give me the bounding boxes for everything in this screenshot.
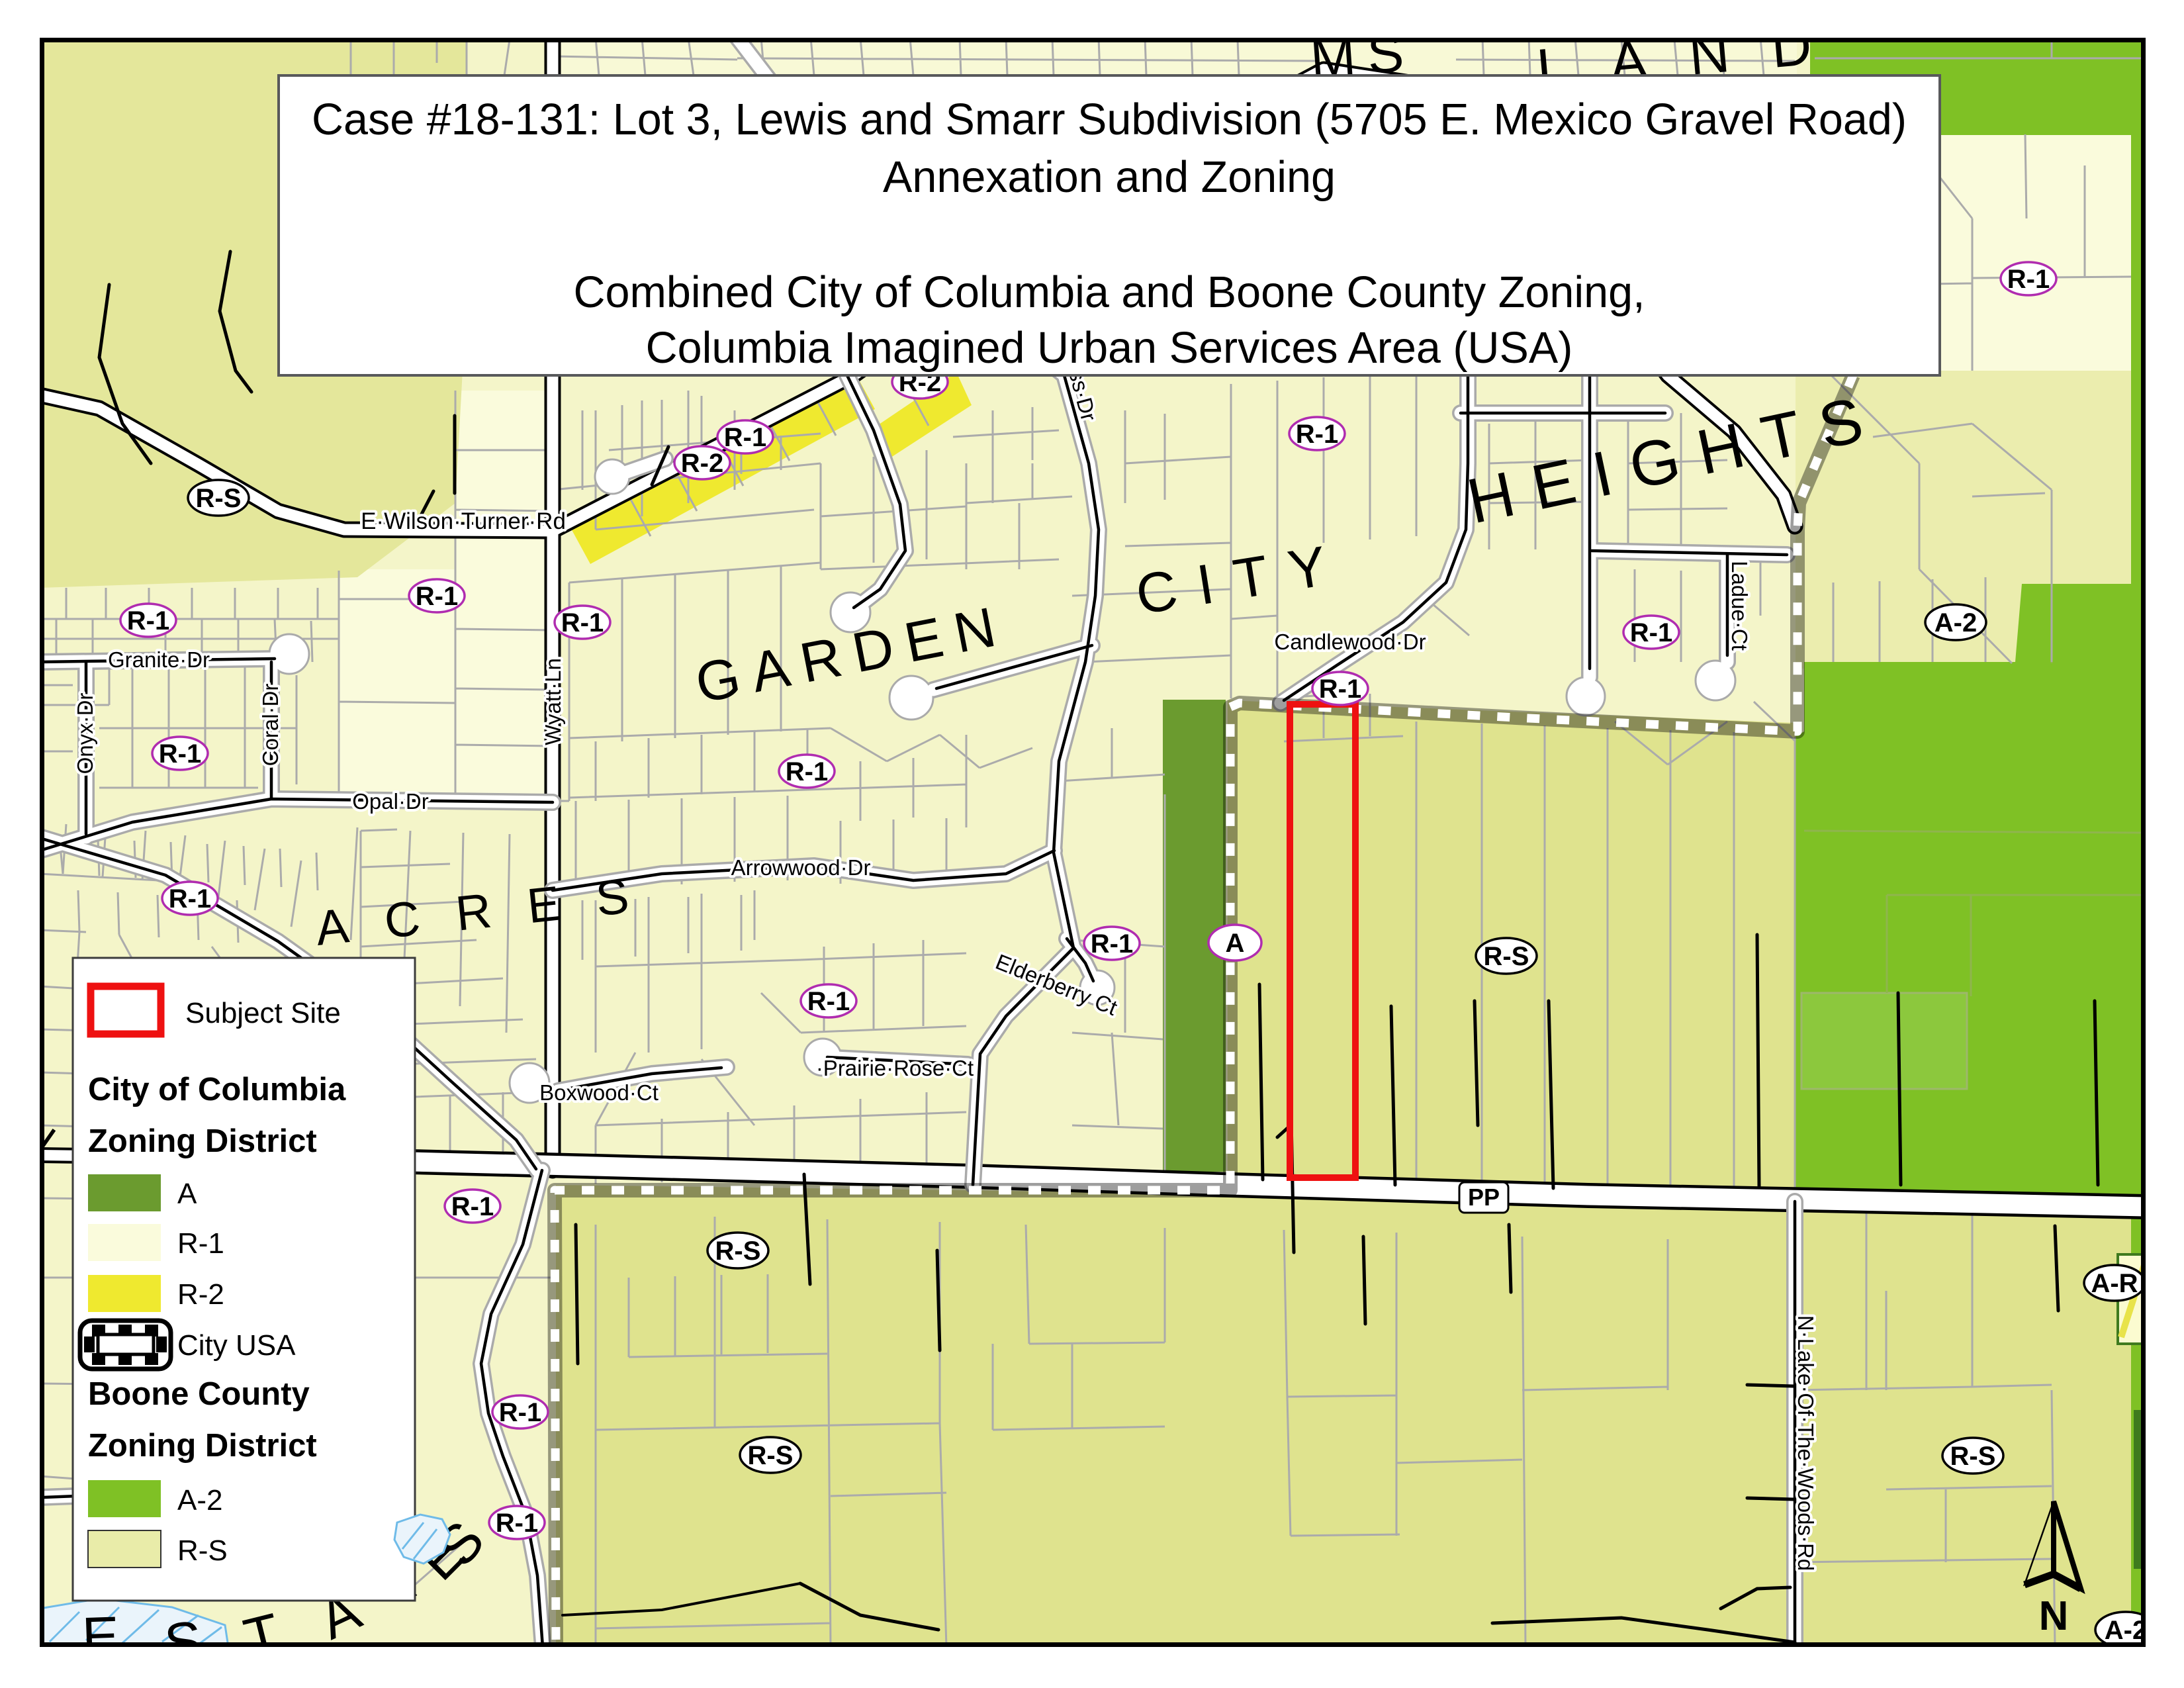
svg-text:R-S: R-S <box>1950 1442 1996 1471</box>
svg-text:S: S <box>161 1608 215 1675</box>
svg-text:PP: PP <box>1468 1184 1500 1211</box>
svg-text:Columbia Imagined Urban Servic: Columbia Imagined Urban Services Area (U… <box>646 324 1573 373</box>
svg-text:A-2: A-2 <box>1934 608 1977 637</box>
svg-text:Candlewood·Dr: Candlewood·Dr <box>1274 630 1426 654</box>
svg-text:Arrowwood·Dr: Arrowwood·Dr <box>731 855 871 880</box>
svg-text:A-R: A-R <box>2091 1269 2138 1298</box>
svg-text:R-1: R-1 <box>499 1398 541 1427</box>
svg-text:N·Lake·Of·The·Woods·Rd: N·Lake·Of·The·Woods·Rd <box>1794 1315 1818 1571</box>
svg-text:Boone County: Boone County <box>88 1376 310 1412</box>
svg-text:R-1: R-1 <box>807 987 850 1016</box>
svg-text:N: N <box>2039 1593 2069 1639</box>
svg-text:R-1: R-1 <box>1091 929 1133 959</box>
svg-text:R-S: R-S <box>748 1441 794 1470</box>
svg-text:Boxwood·Ct: Boxwood·Ct <box>539 1080 659 1105</box>
svg-text:R-1: R-1 <box>1319 675 1361 704</box>
svg-text:City USA: City USA <box>177 1329 296 1362</box>
svg-text:R-1: R-1 <box>2007 265 2050 294</box>
svg-text:City of Columbia: City of Columbia <box>88 1072 346 1107</box>
svg-text:Zoning District: Zoning District <box>88 1123 317 1159</box>
svg-text:A: A <box>177 1178 197 1210</box>
svg-text:R-S: R-S <box>196 484 242 513</box>
svg-text:Combined City of Columbia and: Combined City of Columbia and Boone Coun… <box>573 268 1645 317</box>
svg-text:R-1: R-1 <box>1296 420 1338 449</box>
svg-text:A-2: A-2 <box>2105 1616 2147 1645</box>
svg-text:R-1: R-1 <box>451 1192 494 1221</box>
svg-text:R-S: R-S <box>177 1534 228 1567</box>
svg-text:Opal·Dr: Opal·Dr <box>352 789 429 814</box>
svg-text:R-S: R-S <box>1484 942 1529 971</box>
svg-text:R-1: R-1 <box>496 1509 538 1538</box>
svg-text:Wyatt·Ln: Wyatt·Ln <box>541 658 565 745</box>
svg-text:R-1: R-1 <box>1630 618 1672 647</box>
svg-text:Subject Site: Subject Site <box>185 997 341 1029</box>
svg-text:R-1: R-1 <box>786 757 828 786</box>
svg-text:Annexation and Zoning: Annexation and Zoning <box>883 153 1336 202</box>
svg-text:R-1: R-1 <box>416 582 458 611</box>
svg-text:E·Wilson·Turner·Rd: E·Wilson·Turner·Rd <box>361 508 566 534</box>
svg-text:Coral·Dr: Coral·Dr <box>258 684 283 767</box>
svg-text:Zoning District: Zoning District <box>88 1428 317 1464</box>
svg-text:Granite·Dr: Granite·Dr <box>108 647 210 672</box>
svg-text:R-1: R-1 <box>724 423 766 452</box>
svg-text:R-2: R-2 <box>681 449 723 478</box>
svg-text:R-2: R-2 <box>177 1278 224 1311</box>
svg-text:Onyx·Dr: Onyx·Dr <box>73 693 97 774</box>
svg-text:R-1: R-1 <box>127 606 169 635</box>
svg-text:·Prairie·Rose·Ct: ·Prairie·Rose·Ct <box>816 1056 974 1080</box>
svg-text:E: E <box>81 1605 130 1668</box>
svg-text:A-2: A-2 <box>177 1484 222 1517</box>
svg-text:Case #18-131: Lot 3, Lewis and: Case #18-131: Lot 3, Lewis and Smarr Sub… <box>312 95 1907 144</box>
svg-text:R-1: R-1 <box>561 608 604 637</box>
svg-text:Ladue·Ct: Ladue·Ct <box>1727 561 1752 651</box>
svg-text:R-1: R-1 <box>159 739 201 769</box>
svg-text:R-S: R-S <box>715 1237 761 1266</box>
svg-text:A: A <box>1226 929 1245 958</box>
svg-text:R-1: R-1 <box>169 884 211 914</box>
svg-text:R-1: R-1 <box>177 1227 224 1260</box>
